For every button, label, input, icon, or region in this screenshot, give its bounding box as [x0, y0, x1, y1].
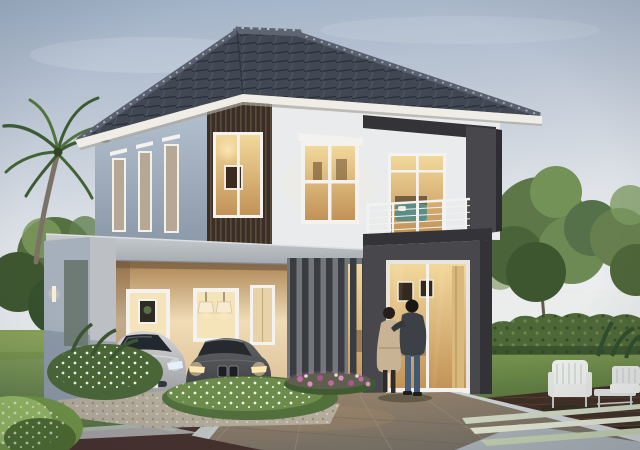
architectural-rendering [0, 0, 640, 450]
vignette [0, 0, 640, 450]
house-scene-canvas [0, 0, 640, 450]
